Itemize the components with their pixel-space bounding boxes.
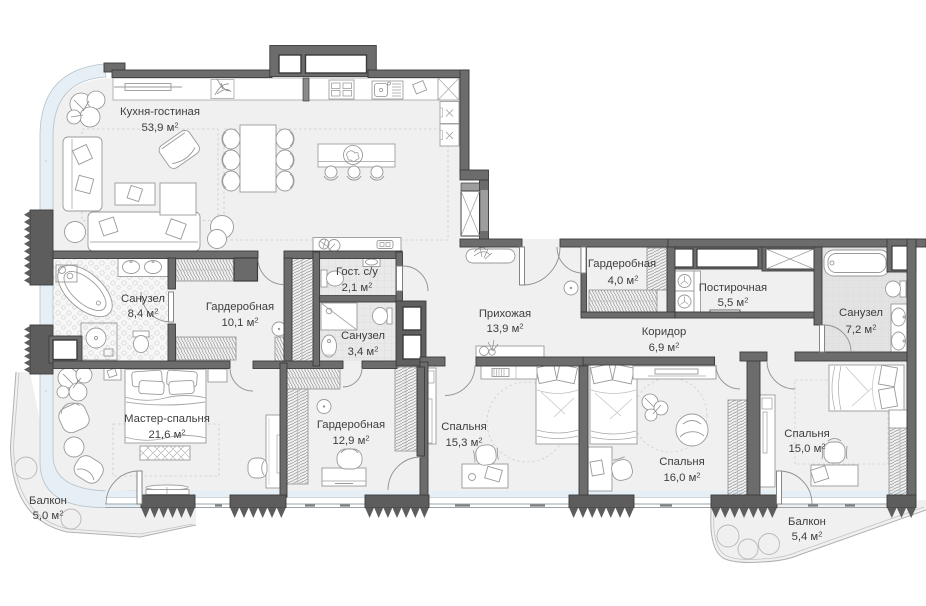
svg-text:Санузел: Санузел [121, 293, 165, 305]
svg-text:16,0 м2: 16,0 м2 [663, 471, 700, 485]
svg-text:Гардеробная: Гардеробная [206, 301, 274, 313]
svg-text:Кухня-гостиная: Кухня-гостиная [120, 106, 200, 118]
svg-text:Прихожая: Прихожая [479, 308, 531, 320]
svg-text:7,2 м2: 7,2 м2 [846, 323, 877, 337]
svg-text:Спальня: Спальня [659, 456, 704, 468]
svg-text:8,4 м2: 8,4 м2 [128, 307, 159, 321]
svg-text:5,0 м2: 5,0 м2 [33, 509, 64, 523]
svg-text:3,4 м2: 3,4 м2 [348, 345, 379, 359]
svg-text:Санузел: Санузел [341, 330, 385, 342]
svg-text:Гардеробная: Гардеробная [588, 258, 656, 270]
svg-text:Коридор: Коридор [642, 326, 687, 338]
svg-text:12,9 м2: 12,9 м2 [332, 434, 369, 448]
svg-text:Спальня: Спальня [784, 428, 829, 440]
svg-text:Балкон: Балкон [29, 495, 67, 507]
svg-text:Постирочная: Постирочная [699, 282, 767, 294]
svg-text:Мастер-спальня: Мастер-спальня [124, 413, 210, 425]
svg-text:21,6 м2: 21,6 м2 [148, 428, 185, 442]
svg-text:6,9 м2: 6,9 м2 [649, 341, 680, 355]
svg-text:10,1 м2: 10,1 м2 [221, 316, 258, 330]
svg-text:Балкон: Балкон [788, 516, 826, 528]
svg-text:5,4 м2: 5,4 м2 [792, 530, 823, 544]
svg-text:13,9 м2: 13,9 м2 [486, 322, 523, 336]
svg-text:15,3 м2: 15,3 м2 [445, 436, 482, 450]
svg-text:15,0 м2: 15,0 м2 [788, 442, 825, 456]
svg-text:53,9 м2: 53,9 м2 [141, 121, 178, 135]
svg-text:5,5 м2: 5,5 м2 [718, 296, 749, 310]
svg-text:2,1 м2: 2,1 м2 [342, 281, 373, 295]
svg-text:4,0 м2: 4,0 м2 [608, 274, 639, 288]
svg-text:Гост. с/у: Гост. с/у [336, 266, 378, 278]
svg-text:Спальня: Спальня [441, 421, 486, 433]
svg-text:Санузел: Санузел [839, 307, 883, 319]
svg-text:Гардеробная: Гардеробная [317, 419, 385, 431]
